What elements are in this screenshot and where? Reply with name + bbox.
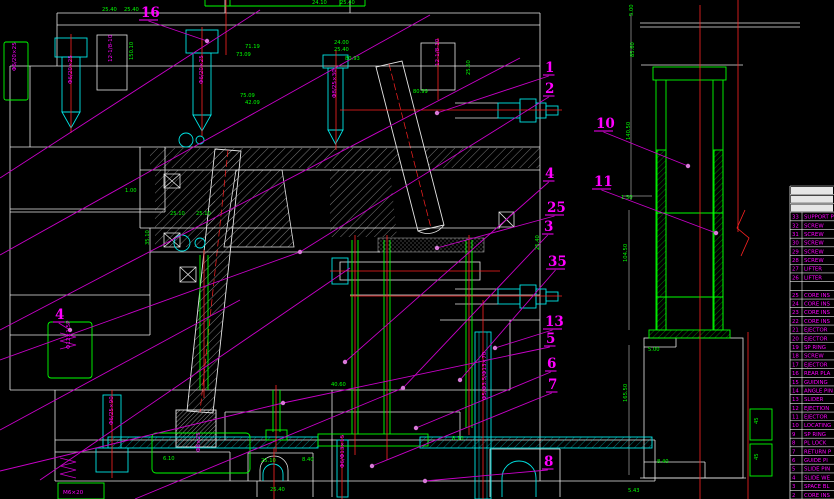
bom-row-no: 8 [792, 441, 796, 447]
bom-row-name: GUIDE PI [804, 458, 828, 464]
bom-row-name: SLIDER [804, 397, 824, 403]
callout-4: 4 [545, 166, 554, 182]
bom-row-name: LOCATING [804, 423, 831, 429]
bom-row-no: 16 [792, 371, 799, 377]
horizontal-pin-2 [498, 289, 520, 304]
bom-row-name: SCREW [804, 249, 824, 255]
leader-dot-16 [205, 39, 209, 43]
bom-row-no: 9 [792, 432, 796, 438]
bom-row-name: SLIDE PIN [804, 467, 830, 473]
dimension-text: 25.60 [466, 60, 472, 75]
callout-leaders [0, 21, 718, 499]
bom-row-no: 31 [792, 232, 799, 238]
dimension-text: 25.40 [270, 487, 285, 493]
callout-4: 4 [55, 307, 64, 323]
spec-text: Φ5/Φ3.5/Φ13×70 [482, 351, 488, 400]
bom-row-name: SCREW [804, 354, 824, 360]
bom-row-name: SP RING [804, 345, 826, 351]
dimension-text: 25.10 [170, 211, 185, 217]
bom-row-no: 23 [792, 310, 799, 316]
bom-row-name: SP RING [804, 432, 826, 438]
bom-header-cell [791, 187, 833, 194]
bom-row-name: CORE INS [804, 302, 830, 308]
spec-text: M6×20 [63, 490, 84, 496]
bom-row-no: 15 [792, 380, 799, 386]
dimension-text: 8.40 [302, 457, 314, 463]
bom-row-name: SUPPORT P [804, 215, 834, 221]
dimension-text: 5.43 [628, 488, 640, 494]
bom-row-no: 12 [792, 406, 799, 412]
bom-row-no: 13 [792, 397, 799, 403]
leader-dot-8 [423, 479, 427, 483]
spec-text: Φ8/25×30 [332, 69, 338, 98]
dimension-text: 25.40 [340, 0, 355, 6]
leader-dot-4 [343, 360, 347, 364]
dimension-text: 25.40 [102, 7, 117, 13]
dimension-text: 1.50 [621, 195, 633, 201]
bom-row-name: SCREW [804, 232, 824, 238]
bom-row-no: 11 [792, 415, 799, 421]
dimension-text: 25.10 [196, 211, 211, 217]
dimension-text: 73.09 [236, 52, 251, 58]
spec-text: Φ6/20×25 [68, 55, 74, 84]
leader-dot-7 [370, 464, 374, 468]
bom-row-name: REAR PLA [804, 371, 831, 377]
bom-row-no: 2 [792, 493, 795, 499]
bom-row-name: EJECTOR [804, 415, 828, 421]
callout-6: 6 [547, 356, 556, 372]
leader-dot-1 [435, 111, 439, 115]
leader-line-8 [425, 470, 548, 481]
bom-row-name: LIFTER [804, 275, 822, 281]
leader-dot-2 [298, 250, 302, 254]
bom-row-name: LIFTER [804, 267, 822, 273]
callout-16: 16 [141, 5, 160, 21]
cad-canvas[interactable]: 161210411253351356784 25.4025.4024.1025.… [0, 0, 834, 499]
bom-row-name: EJECTION [804, 406, 829, 412]
leader-dot-10 [686, 164, 690, 168]
dimension-text: 24.10 [312, 0, 327, 6]
leader-line-10 [604, 132, 689, 166]
callout-8: 8 [544, 454, 553, 470]
bom-row-no: 26 [792, 275, 799, 281]
dimension-text: 25.10 [261, 458, 276, 464]
callout-2: 2 [545, 81, 554, 97]
dimension-text: 8.10 [452, 436, 464, 442]
dimension-text: 85.60 [630, 42, 636, 57]
bom-row-no: 21 [792, 328, 799, 334]
leader-dot-11 [714, 231, 718, 235]
bom-row-name: EJECTOR [804, 336, 828, 342]
bom-row-no: 5 [792, 467, 795, 473]
bom-row-no: 27 [792, 267, 799, 273]
leader-line-7 [372, 393, 552, 466]
dimension-text: 35.10 [145, 230, 151, 245]
dimension-text: 25.40 [535, 235, 541, 250]
bom-row-no: 33 [792, 215, 799, 221]
spec-text: Φ8×25 [196, 432, 202, 452]
bom-row-no: 17 [792, 362, 799, 368]
bom-row-no: 29 [792, 249, 799, 255]
leader-line-16 [149, 21, 208, 41]
leader-dot-35 [458, 378, 462, 382]
dimension-text: 1.00 [125, 188, 137, 194]
leader-line-35 [460, 270, 556, 380]
dimension-text: 40.60 [331, 382, 346, 388]
leader-dot-6 [414, 426, 418, 430]
bom-row-name: CORE INS [804, 493, 830, 499]
dimension-text: 80.93 [345, 56, 360, 62]
bom-row-no: 4 [792, 475, 796, 481]
bom-row-name: CORE INS [804, 319, 830, 325]
callout-1: 1 [545, 60, 554, 76]
bom-row-name: SCREW [804, 258, 824, 264]
callout-11: 11 [594, 174, 613, 190]
dimension-text: 75.09 [240, 93, 255, 99]
bom-header-cell [791, 196, 833, 203]
bom-table: 33SUPPORT P32SCREW31SCREW30SCREW29SCREW2… [790, 186, 834, 499]
bom-row-name: SLIDE WE [804, 475, 831, 481]
dimension-text: 42.09 [245, 100, 260, 106]
dimension-text: 24.00 [334, 40, 349, 46]
bom-row-no: 10 [792, 423, 799, 429]
bom-row-name: RETURN P [804, 449, 832, 455]
leader-dot-3 [401, 386, 405, 390]
callout-25: 25 [547, 200, 566, 216]
bom-row-no: 14 [792, 388, 799, 394]
bom-row-name: PL LOCK [804, 441, 827, 447]
dimension-text: 5.00 [648, 347, 660, 353]
dimension-text: 104.50 [623, 244, 629, 262]
wear-plate-stipple-strip [378, 238, 484, 252]
spec-text: Φ6/25×90 [109, 396, 115, 425]
leader-dot-13 [493, 346, 497, 350]
bom-row-no: 22 [792, 319, 799, 325]
spec-text: Φ6/Φ13×15 [340, 434, 346, 468]
bom-row-name: SPACE BL [804, 484, 830, 490]
dimension-text: 8.40 [657, 459, 669, 465]
bom-row-no: 25 [792, 293, 799, 299]
bom-row-no: 18 [792, 354, 799, 360]
dimension-text: 80.99 [413, 89, 428, 95]
spec-text: Φ12×1.5P [66, 320, 72, 349]
bom-row-no: 28 [792, 258, 799, 264]
callout-10: 10 [596, 116, 615, 132]
spec-text: 12-1/8-10 [108, 34, 114, 62]
side-view-plate [644, 338, 743, 478]
dimension-text: 25.40 [124, 7, 139, 13]
bom-row-name: EJECTOR [804, 328, 828, 334]
bom-row-name: SCREW [804, 223, 824, 229]
dimension-text: 6.10 [163, 456, 175, 462]
callout-3: 3 [544, 219, 553, 235]
leader-dot-25 [435, 246, 439, 250]
bom-row-no: 3 [792, 484, 795, 490]
side-view-bushing-flange [653, 67, 726, 80]
bom-row-no: 6 [792, 458, 796, 464]
bom-row-name: GUIDING [804, 380, 828, 386]
dimension-text: 150.10 [129, 42, 135, 60]
bom-row-no: 32 [792, 223, 799, 229]
leader-dot-5 [281, 401, 285, 405]
bom-row-no: 30 [792, 241, 799, 247]
dimension-text: 140.50 [626, 122, 632, 140]
horizontal-pin [498, 103, 520, 118]
spec-text: Φ6/20×25 [199, 55, 205, 84]
callout-35: 35 [548, 254, 567, 270]
callout-13: 13 [545, 314, 564, 330]
bom-row-name: CORE INS [804, 293, 830, 299]
dimension-text: 165.50 [623, 384, 629, 402]
bom-header-cell [791, 204, 833, 211]
dimension-text: 25.40 [334, 47, 349, 53]
dimension-text: 71.19 [245, 44, 260, 50]
bom-row-name: ANGLE PIN [804, 388, 833, 394]
bom-row-no: 20 [792, 336, 799, 342]
mold-assembly-drawing: 161210411253351356784 25.4025.4024.1025.… [0, 0, 834, 499]
dimension-text: 45 [754, 417, 760, 424]
bom-row-name: SCREW [804, 241, 824, 247]
callout-5: 5 [546, 331, 555, 347]
bom-row-no: 24 [792, 302, 799, 308]
bom-row-no: 19 [792, 345, 799, 351]
dimension-text: 5.00 [629, 4, 635, 16]
wear-strip [108, 437, 318, 448]
leader-line-13 [495, 330, 553, 348]
bom-row-name: EJECTOR [804, 362, 828, 368]
spec-text: Φ6/20×25 [12, 42, 18, 71]
dimension-text: 45 [754, 453, 760, 460]
spec-text: 12-1/8-10 [435, 38, 441, 66]
callout-7: 7 [548, 377, 557, 393]
bom-row-name: CORE INS [804, 310, 830, 316]
break-line [737, 210, 749, 256]
bom-row-no: 7 [792, 449, 795, 455]
